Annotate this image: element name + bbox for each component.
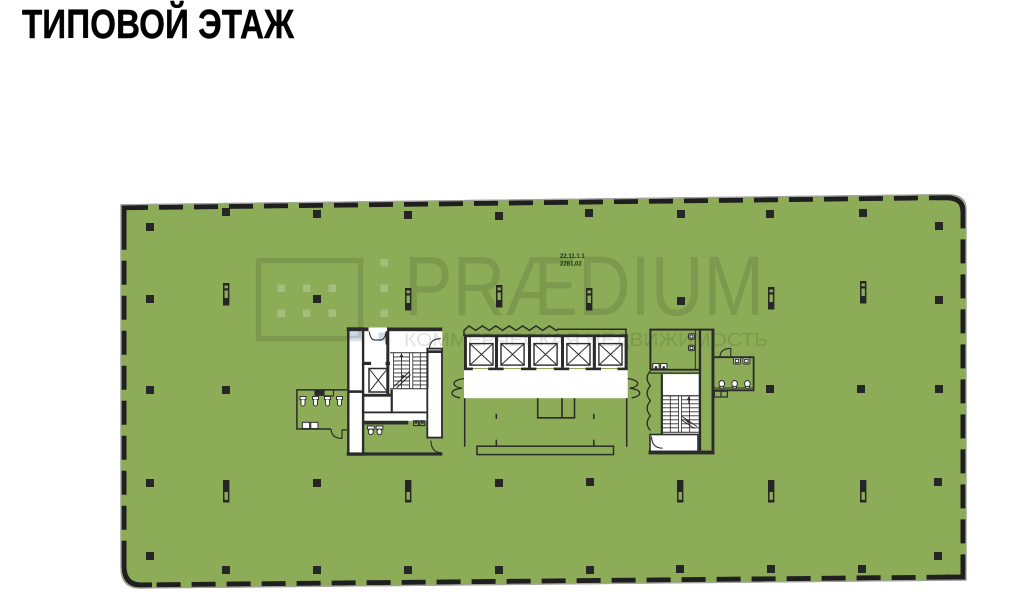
svg-text:ТИПОВОЙ ЭТАЖ: ТИПОВОЙ ЭТАЖ (22, 1, 294, 47)
svg-text:22.11.1.1: 22.11.1.1 (560, 254, 585, 260)
svg-text:2281,02: 2281,02 (560, 262, 582, 268)
